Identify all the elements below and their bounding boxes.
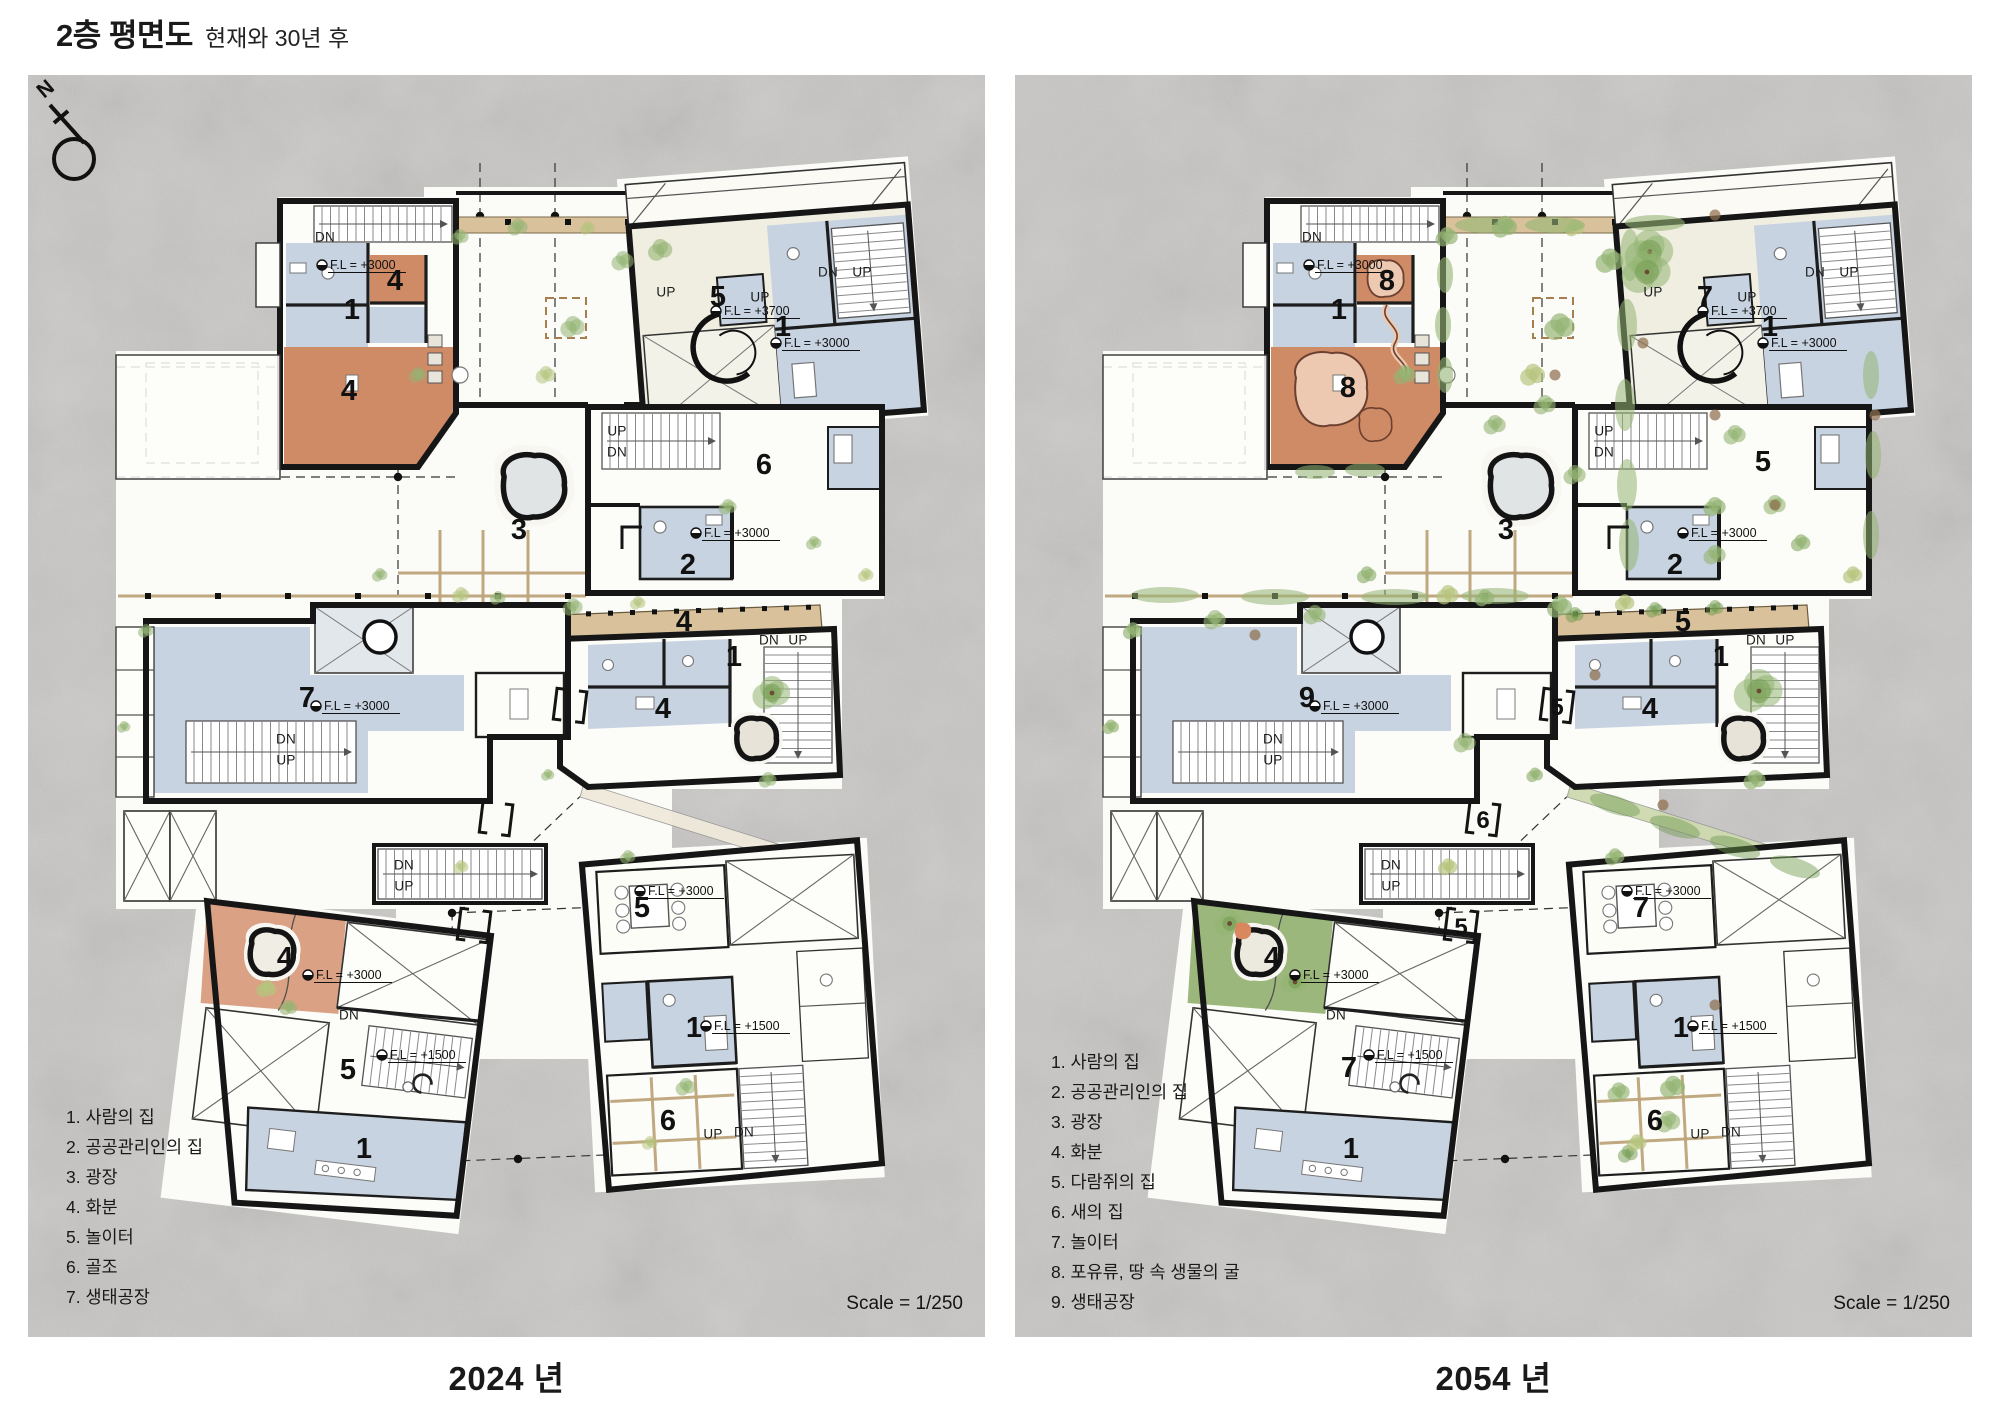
svg-text:DN: DN [1263,732,1283,747]
svg-text:2: 2 [680,549,696,581]
plan-label: DN [1326,1008,1346,1023]
page-title: 2층 평면도 현재와 30년 후 [56,10,349,55]
plan-label: UP [1594,424,1613,439]
svg-text:UP: UP [852,265,871,280]
svg-text:5: 5 [1675,606,1691,638]
svg-text:6: 6 [1476,807,1489,834]
plan-label: F.L = +3000 [1290,968,1379,983]
block-midright-house [1547,629,1827,787]
svg-text:1: 1 [356,1133,372,1165]
plan-label: DN [1263,732,1283,747]
svg-text:2: 2 [1667,549,1683,581]
svg-text:F.L = +3000: F.L = +3000 [1303,968,1369,982]
plan-label: 6 [756,449,772,481]
svg-text:DN: DN [339,1008,359,1023]
plan-label: UP [750,290,769,305]
plaza-structure [116,355,280,479]
plan-label: UP [1381,879,1400,894]
svg-text:F.L = +3000: F.L = +3000 [1771,336,1837,350]
plan-label: DN [1746,633,1766,648]
svg-text:7: 7 [1341,1052,1357,1084]
svg-text:5: 5 [340,1054,356,1086]
svg-text:UP: UP [1263,753,1282,768]
svg-text:DN: DN [1381,858,1401,873]
plan-label: DN [1381,858,1401,873]
plan-label: DN [315,230,335,245]
plan-label: 6 [1647,1105,1663,1137]
plan-label: UP [852,265,871,280]
plan-label: F.L = +3000 [771,336,860,351]
svg-text:F.L = +1500: F.L = +1500 [714,1019,780,1033]
svg-text:F.L = +3000: F.L = +3000 [648,884,714,898]
svg-text:DN: DN [276,732,296,747]
plan-label: DN [759,633,779,648]
plan-label: DN [1805,265,1825,280]
svg-text:1: 1 [726,641,742,673]
svg-text:F.L = +3000: F.L = +3000 [1691,526,1757,540]
svg-text:F.L = +3000: F.L = +3000 [1317,258,1383,272]
plan-label: 1 [344,294,360,326]
plan-label: 5 [1550,694,1563,721]
floor-plan-panel-2054: DNF.L = +3000818UP7F.L = +3700UPDNUP1F.L… [1015,75,1972,1337]
svg-text:UP: UP [1690,1127,1709,1142]
svg-text:1: 1 [1673,1012,1689,1044]
pond [494,445,574,527]
pond [731,712,783,765]
plan-label: DN [1302,230,1322,245]
plan-label: DN [1721,1125,1741,1140]
pond [1481,445,1561,527]
plan-label: 5 [1675,606,1691,638]
svg-text:UP: UP [276,753,295,768]
legend-item: 6. 새의 집 [1051,1197,1240,1227]
svg-text:F.L = +3000: F.L = +3000 [324,699,390,713]
plan-label: 1 [1331,294,1347,326]
plan-label: F.L = +3000 [303,968,392,983]
plan-label: UP [1643,285,1662,300]
plaza-structure [1103,355,1267,479]
plan-label: 2 [1667,549,1683,581]
plan-label: F.L = +1500 [377,1048,466,1063]
svg-text:7: 7 [1633,892,1649,924]
svg-text:F.L = +1500: F.L = +1500 [1377,1048,1443,1062]
svg-text:5: 5 [1550,694,1563,721]
plan-label: 8 [1340,372,1356,404]
plan-label: 1 [686,1012,702,1044]
plan-label: 4 [387,265,403,297]
svg-text:UP: UP [607,424,626,439]
legend-item: 5. 놀이터 [66,1222,203,1252]
svg-text:DN: DN [1302,230,1322,245]
plan-label: 6 [1476,807,1489,834]
svg-text:F.L = +3000: F.L = +3000 [704,526,770,540]
legend-item: 2. 공공관리인의 집 [1051,1077,1240,1107]
plan-label: 1 [356,1133,372,1165]
svg-text:6: 6 [756,449,772,481]
plan-label: UP [1690,1127,1709,1142]
svg-text:1: 1 [1343,1133,1359,1165]
plan-label: 4 [1264,942,1280,974]
svg-text:UP: UP [1594,424,1613,439]
plan-label: F.L = +3000 [1758,336,1847,351]
plan-label: 8 [1379,265,1395,297]
block-midright-house [560,629,840,787]
svg-text:UP: UP [1737,290,1756,305]
svg-text:DN: DN [1721,1125,1741,1140]
scale-label: Scale = 1/250 [1833,1293,1950,1315]
svg-text:4: 4 [1642,693,1658,725]
svg-text:DN: DN [394,858,414,873]
plan-label: 3 [1498,514,1514,546]
plan-label: F.L = +1500 [1364,1048,1453,1063]
svg-text:8: 8 [1340,372,1356,404]
plan-label: DN [607,445,627,460]
svg-text:UP: UP [656,285,675,300]
page: 2층 평면도 현재와 30년 후 NDNF.L = +3000414UP5F.L… [0,0,2000,1414]
plan-label: 7 [1633,892,1649,924]
svg-text:1: 1 [1331,294,1347,326]
svg-text:UP: UP [788,633,807,648]
block-topleft-house [256,201,456,467]
svg-text:F.L = +1500: F.L = +1500 [1701,1019,1767,1033]
plan-label: 5 [634,892,650,924]
svg-text:DN: DN [818,265,838,280]
plan-label: UP [1737,290,1756,305]
plan-label: UP [656,285,675,300]
plan-label: DN [818,265,838,280]
legend-item: 3. 광장 [1051,1107,1240,1137]
legend-item: 3. 광장 [66,1162,203,1192]
svg-text:4: 4 [655,693,671,725]
plan-label: UP [703,1127,722,1142]
plan-label: 5 [1454,914,1467,941]
plan-label: F.L = +3000 [1310,699,1399,714]
plan-label: UP [1263,753,1282,768]
plan-label: 1 [1343,1133,1359,1165]
legend-item: 7. 놀이터 [1051,1227,1240,1257]
svg-text:4: 4 [676,606,692,638]
legend-item: 9. 생태공장 [1051,1287,1240,1317]
plan-label: DN [734,1125,754,1140]
plan-label: 2 [680,549,696,581]
plan-label: 5 [1755,446,1771,478]
plan-label: 4 [277,942,293,974]
plan-label: 4 [1642,693,1658,725]
legend-item: 2. 공공관리인의 집 [66,1132,203,1162]
legend-item: 8. 포유류, 땅 속 생물의 굴 [1051,1257,1240,1287]
svg-text:F.L = +3000: F.L = +3000 [316,968,382,982]
svg-text:DN: DN [1326,1008,1346,1023]
legend-item: 4. 화분 [66,1192,203,1222]
svg-text:5: 5 [634,892,650,924]
svg-text:UP: UP [703,1127,722,1142]
plan-label: 6 [660,1105,676,1137]
svg-text:1: 1 [686,1012,702,1044]
plan-label: 1 [1673,1012,1689,1044]
svg-text:4: 4 [387,265,403,297]
svg-text:1: 1 [1713,641,1729,673]
legend-item: 5. 다람쥐의 집 [1051,1167,1240,1197]
legend-2024: 1. 사람의 집2. 공공관리인의 집3. 광장4. 화분5. 놀이터6. 골조… [66,1102,203,1312]
plan-label: DN [276,732,296,747]
block-right-wing [588,407,882,593]
plan-label: DN [394,858,414,873]
plan-label: DN [339,1008,359,1023]
plan-label: UP [1775,633,1794,648]
block-topleft-house [1243,201,1443,467]
plan-label: F.L = +1500 [701,1019,790,1034]
plan-label: UP [394,879,413,894]
block-bottomcenter [1568,840,1869,1190]
svg-text:DN: DN [315,230,335,245]
svg-text:5: 5 [1454,914,1467,941]
svg-text:UP: UP [1381,879,1400,894]
svg-text:8: 8 [1379,265,1395,297]
plan-label: 5 [340,1054,356,1086]
svg-text:F.L = +1500: F.L = +1500 [390,1048,456,1062]
plan-label: 4 [341,375,357,407]
svg-text:4: 4 [277,942,293,974]
legend-item: 7. 생태공장 [66,1282,203,1312]
svg-text:DN: DN [734,1125,754,1140]
page-title-subtitle: 현재와 30년 후 [205,19,349,53]
plan-label: UP [607,424,626,439]
svg-text:3: 3 [511,514,527,546]
plan-label: F.L = +3000 [1678,526,1767,541]
svg-text:DN: DN [1805,265,1825,280]
plan-label: 1 [726,641,742,673]
svg-text:3: 3 [1498,514,1514,546]
floor-plan-panel-2024: NDNF.L = +3000414UP5F.L = +3700UPDNUP1F.… [28,75,985,1337]
legend-2054: 1. 사람의 집2. 공공관리인의 집3. 광장4. 화분5. 다람쥐의 집6.… [1051,1047,1240,1317]
svg-text:F.L = +3000: F.L = +3000 [330,258,396,272]
plan-label: F.L = +1500 [1688,1019,1777,1034]
plan-label: F.L = +3000 [691,526,780,541]
svg-text:6: 6 [1647,1105,1663,1137]
svg-text:6: 6 [660,1105,676,1137]
plan-label: 7 [1341,1052,1357,1084]
courtyard-stair [374,845,546,903]
svg-text:UP: UP [394,879,413,894]
plan-label: 1 [1713,641,1729,673]
plan-label: 3 [511,514,527,546]
plan-label: UP [788,633,807,648]
svg-text:F.L = +3000: F.L = +3000 [784,336,850,350]
scale-label: Scale = 1/250 [846,1293,963,1315]
svg-text:1: 1 [344,294,360,326]
svg-text:UP: UP [1775,633,1794,648]
year-caption-2024: 2024 년 [28,1352,985,1400]
pond [1718,712,1770,765]
svg-text:UP: UP [1643,285,1662,300]
plan-label: 4 [676,606,692,638]
svg-text:4: 4 [1264,942,1280,974]
block-bottomcenter [581,840,882,1190]
page-title-main: 2층 평면도 [56,10,193,55]
svg-text:DN: DN [1746,633,1766,648]
legend-item: 4. 화분 [1051,1137,1240,1167]
plan-label: UP [1839,265,1858,280]
legend-item: 1. 사람의 집 [1051,1047,1240,1077]
svg-text:DN: DN [1594,445,1614,460]
plan-label: UP [276,753,295,768]
svg-text:4: 4 [341,375,357,407]
legend-item: 6. 골조 [66,1252,203,1282]
svg-text:UP: UP [750,290,769,305]
plan-label: DN [1594,445,1614,460]
svg-text:DN: DN [607,445,627,460]
svg-text:UP: UP [1839,265,1858,280]
legend-item: 1. 사람의 집 [66,1102,203,1132]
plan-label: F.L = +3000 [311,699,400,714]
plan-label: 4 [655,693,671,725]
year-caption-2054: 2054 년 [1015,1352,1972,1400]
svg-text:DN: DN [759,633,779,648]
svg-text:5: 5 [1755,446,1771,478]
svg-text:F.L = +3000: F.L = +3000 [1323,699,1389,713]
